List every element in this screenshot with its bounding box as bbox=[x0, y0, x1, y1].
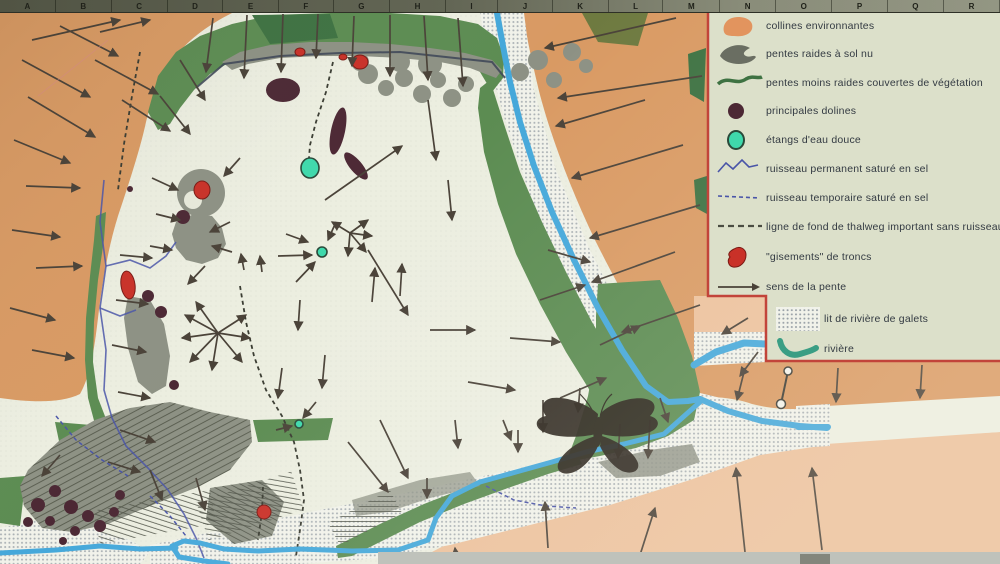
legend-symbol-pond-icon bbox=[716, 126, 766, 154]
legend-label: rivière bbox=[824, 343, 854, 355]
legend-item: ruisseau temporaire saturé en sel bbox=[716, 185, 928, 211]
legend-symbol-river-icon bbox=[774, 335, 824, 363]
screen-bezel bbox=[378, 552, 1000, 564]
ruler-cell: B bbox=[56, 0, 112, 12]
legend-symbol-doline-icon bbox=[716, 97, 766, 125]
ruler-cell: A bbox=[0, 0, 56, 12]
grid-ruler: ABCDEFGHIJKLMNOPQR bbox=[0, 0, 1000, 13]
ruler-cell: D bbox=[168, 0, 224, 12]
legend-item: "gisements" de troncs bbox=[716, 244, 872, 270]
legend-symbol-gentle-icon bbox=[716, 69, 766, 97]
legend-item: sens de la pente bbox=[716, 274, 846, 300]
legend-label: pentes raides à sol nu bbox=[766, 48, 873, 60]
legend-item: pentes raides à sol nu bbox=[716, 41, 873, 67]
map-photo: collines environnantespentes raides à so… bbox=[0, 0, 1000, 564]
legend: collines environnantespentes raides à so… bbox=[708, 10, 1000, 363]
ruler-cell: F bbox=[279, 0, 334, 12]
ruler-cell: Q bbox=[888, 0, 944, 12]
legend-label: sens de la pente bbox=[766, 281, 846, 293]
legend-item: pentes moins raides couvertes de végétat… bbox=[716, 70, 983, 96]
legend-label: principales dolines bbox=[766, 105, 856, 117]
legend-label: "gisements" de troncs bbox=[766, 251, 872, 263]
ruler-cell: I bbox=[446, 0, 498, 12]
ruler-cell: O bbox=[776, 0, 832, 12]
legend-label: collines environnantes bbox=[766, 20, 874, 32]
ruler-cell: E bbox=[223, 0, 278, 12]
legend-symbol-perm-icon bbox=[716, 155, 766, 183]
legend-label: ligne de fond de thalweg important sans … bbox=[766, 221, 1000, 233]
ruler-cell: H bbox=[390, 0, 446, 12]
legend-item: ruisseau permanent saturé en sel bbox=[716, 156, 928, 182]
legend-symbol-slope-icon bbox=[716, 273, 766, 301]
legend-item: lit de rivière de galets bbox=[774, 306, 928, 332]
legend-item: ligne de fond de thalweg important sans … bbox=[716, 214, 1000, 240]
legend-symbol-temp-icon bbox=[716, 184, 766, 212]
ruler-cell: J bbox=[498, 0, 553, 12]
bezel-tab bbox=[800, 554, 830, 564]
ruler-cell: R bbox=[944, 0, 1000, 12]
legend-item: rivière bbox=[774, 336, 854, 362]
ruler-cell: N bbox=[720, 0, 776, 12]
legend-label: lit de rivière de galets bbox=[824, 313, 928, 325]
legend-item: collines environnantes bbox=[716, 13, 874, 39]
ruler-cell: M bbox=[663, 0, 720, 12]
ruler-cell: L bbox=[609, 0, 664, 12]
legend-symbol-thalweg-icon bbox=[716, 213, 766, 241]
legend-symbol-steep-icon bbox=[716, 40, 766, 68]
legend-symbol-hills-icon bbox=[716, 12, 766, 40]
legend-label: étangs d'eau douce bbox=[766, 134, 861, 146]
ruler-cell: C bbox=[112, 0, 168, 12]
ruler-cell: P bbox=[832, 0, 887, 12]
ruler-cell: G bbox=[334, 0, 390, 12]
legend-label: pentes moins raides couvertes de végétat… bbox=[766, 77, 983, 89]
legend-label: ruisseau permanent saturé en sel bbox=[766, 163, 928, 175]
ruler-cell: K bbox=[553, 0, 609, 12]
legend-label: ruisseau temporaire saturé en sel bbox=[766, 192, 928, 204]
legend-symbol-troncs-icon bbox=[716, 243, 766, 271]
legend-item: étangs d'eau douce bbox=[716, 127, 861, 153]
legend-symbol-gravel-icon bbox=[774, 305, 824, 333]
legend-item: principales dolines bbox=[716, 98, 856, 124]
